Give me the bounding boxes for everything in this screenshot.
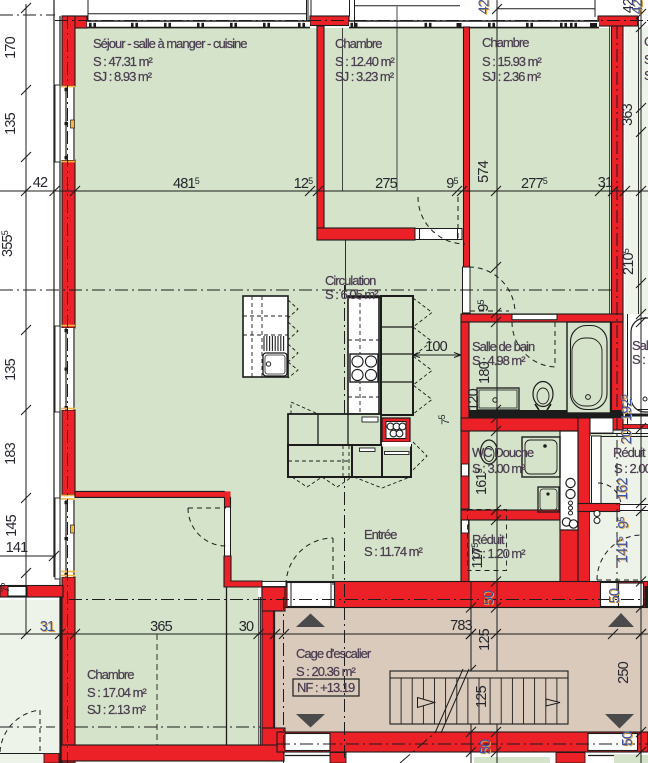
svg-text:Sall: Sall [632,338,648,353]
svg-text:Salle de bain: Salle de bain [472,339,535,354]
svg-text:363: 363 [620,103,636,126]
svg-text:120: 120 [466,388,482,411]
svg-text:275: 275 [375,176,398,192]
svg-text:Circulation: Circulation [325,273,376,288]
svg-text:31: 31 [598,175,613,191]
svg-text:365: 365 [150,619,173,635]
svg-text:50: 50 [478,739,494,754]
svg-text:SJ : 2.13 m²: SJ : 2.13 m² [87,702,147,717]
svg-text:S.: S. [644,68,648,83]
svg-text:Cage d'escalier: Cage d'escalier [296,646,372,661]
svg-text:125: 125 [477,628,493,651]
svg-text:S : 6.05 m²: S : 6.05 m² [325,287,379,302]
svg-text:250: 250 [616,661,632,684]
svg-text:S : 12.40 m²: S : 12.40 m² [335,54,395,69]
svg-text:42: 42 [33,175,48,191]
svg-text:783: 783 [450,618,473,634]
svg-text:135: 135 [3,112,19,135]
svg-text:WC Douche: WC Douche [472,445,534,460]
svg-text:Réduit: Réduit [613,445,646,460]
svg-text:135: 135 [3,358,19,381]
svg-text:42: 42 [477,0,493,14]
svg-text:NF : +13.19: NF : +13.19 [297,680,355,695]
svg-text:S : 15.93 m²: S : 15.93 m² [482,54,542,69]
svg-text:42: 42 [630,0,646,14]
svg-text:Entrée: Entrée [364,527,397,542]
svg-text:574: 574 [476,160,492,183]
svg-text:50: 50 [620,731,636,746]
svg-text:S : 17.04 m²: S : 17.04 m² [87,685,147,700]
svg-text:Séjour - salle à manger - cuis: Séjour - salle à manger - cuisine [93,36,247,51]
svg-text:SJ : 2.36 m²: SJ : 2.36 m² [482,69,542,84]
svg-text:20: 20 [619,429,635,444]
svg-text:31: 31 [40,619,55,635]
svg-text:S : 5: S : 5 [632,352,648,367]
svg-text:180: 180 [477,361,493,384]
svg-text:Chambre: Chambre [482,35,529,50]
svg-text:30: 30 [239,619,254,635]
svg-text:S : 20.36 m²: S : 20.36 m² [296,664,356,679]
svg-text:50: 50 [607,588,623,603]
svg-text:SJ : 3.23 m²: SJ : 3.23 m² [335,69,395,84]
svg-text:170: 170 [3,36,19,59]
svg-text:50: 50 [481,590,497,605]
svg-text:C: C [644,34,648,49]
svg-text:183: 183 [3,442,19,465]
svg-text:100: 100 [425,339,448,355]
svg-text:S : 2.00: S : 2.00 [614,461,648,476]
svg-text:125: 125 [474,685,490,708]
svg-text:Chambre: Chambre [87,667,134,682]
svg-text:145: 145 [4,514,20,537]
svg-text:141: 141 [6,540,29,556]
svg-text:SJ : 8.93 m²: SJ : 8.93 m² [93,69,153,84]
svg-text:S: S [644,52,648,67]
svg-text:S : 11.74 m²: S : 11.74 m² [364,544,424,559]
svg-text:S : 47.31 m²: S : 47.31 m² [93,54,153,69]
svg-text:162: 162 [615,477,631,500]
svg-text:Chambre: Chambre [335,36,382,51]
